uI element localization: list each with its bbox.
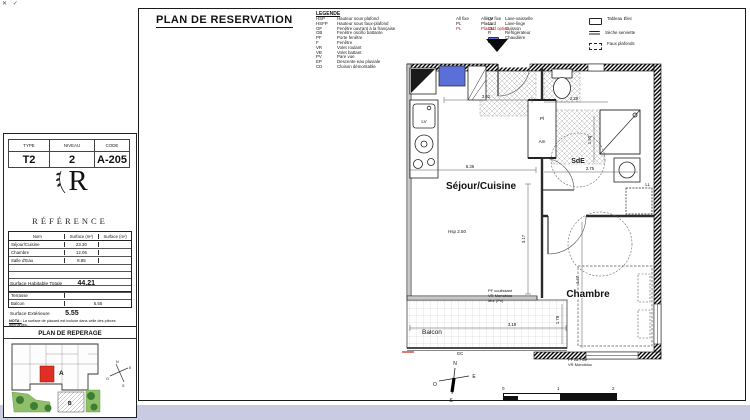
svg-text:VR Monobloc: VR Monobloc (568, 362, 592, 367)
brand-name: RÉFÉRENCE (4, 216, 136, 226)
chaudiere (439, 66, 465, 86)
balcony (402, 300, 567, 352)
surface-row-empty (9, 265, 131, 272)
svg-text:3.19: 3.19 (508, 322, 517, 327)
svg-text:S: S (122, 384, 125, 388)
chambre-label: Chambre (566, 289, 610, 300)
total-value: 44.21 (78, 280, 96, 287)
reperage-heading: PLAN DE REPERAGE (4, 327, 136, 339)
legend-col4: Tableau Élec Sèche serviette Faux plafon… (589, 17, 659, 56)
niveau-header: NIVEAU (50, 140, 95, 152)
brand-logo: R (4, 166, 136, 196)
code-header: CODE (95, 140, 130, 152)
site-plan: A B N E S O (6, 340, 134, 414)
hsp-label: Hsp 2.50 (448, 229, 467, 234)
am-label: Am (539, 139, 546, 144)
scale-bar: 0 1 2 (495, 386, 625, 403)
svg-text:2.75: 2.75 (586, 166, 595, 171)
svg-text:N: N (453, 361, 457, 367)
svg-text:5.36: 5.36 (466, 164, 475, 169)
svg-text:Mur (Pv): Mur (Pv) (488, 298, 504, 303)
surface-row: Chambre12.06 (9, 249, 131, 257)
sejour-label: Séjour/Cuisine (446, 181, 516, 192)
lv-label: LV (421, 119, 426, 124)
compass-rose-icon: N E S O (430, 356, 486, 404)
highlighted-unit (40, 366, 54, 382)
plan-reservation-page: ✕ ✓ PLAN DE RESERVATION LEGENDE HSPHaute… (0, 0, 750, 420)
svg-text:O: O (106, 377, 109, 381)
sde-label: SdE (571, 158, 585, 165)
total-label: Surface Habitable Totale (10, 282, 62, 287)
floor-plan: 3.62 5.36 3.17 2.29 1.90 2.75 4.47 3.19 … (402, 56, 672, 368)
page-title: PLAN DE RESERVATION (156, 14, 293, 28)
svg-text:E: E (472, 374, 476, 380)
col-surface1: Surface (m²) (65, 234, 100, 239)
building-a-label: A (59, 370, 64, 377)
exterior-label: Surface Extérieure (10, 312, 50, 317)
cursor-triangle-icon (486, 39, 508, 52)
type-header: TYPE (9, 140, 50, 152)
surface-table: Nom Surface (m²) Surface (m²) Séjour/Cui… (8, 231, 132, 300)
exterior-value: 5.55 (65, 310, 79, 317)
seche-serviette-icon (589, 31, 600, 36)
closet-pl (528, 100, 556, 158)
svg-text:S: S (449, 398, 453, 404)
corner-marks: ✕ ✓ (2, 0, 20, 7)
pl-label: Pl (540, 116, 544, 122)
exterior-line: Surface Extérieure 5.55 (10, 310, 132, 317)
exterior-table: Terrasse Balcon5.55 (8, 291, 132, 308)
faux-plafonds-icon (589, 43, 602, 50)
svg-text:2.29: 2.29 (570, 96, 579, 101)
balcon-label: Balcon (422, 329, 442, 336)
faux-plafond-area (552, 110, 604, 164)
svg-text:1.90: 1.90 (587, 135, 592, 144)
building-b-label: B (68, 401, 72, 407)
total-line: Surface Habitable Totale 44.21 (10, 280, 132, 287)
surface-row-empty (9, 272, 131, 279)
svg-text:E: E (129, 366, 132, 370)
ll-label: LL (645, 182, 650, 187)
brand-initial: R (68, 165, 87, 197)
balcon-row: Balcon5.55 (9, 300, 131, 307)
surface-row: Salle d'Eau8.85 (9, 257, 131, 265)
col-surface2: Surface (m²) (99, 234, 131, 239)
svg-text:N: N (116, 360, 119, 364)
svg-text:3.17: 3.17 (521, 234, 526, 243)
info-panel: TYPE NIVEAU CODE T2 2 A-205 R RÉFÉRENCE … (3, 133, 137, 328)
col-nom: Nom (9, 234, 65, 239)
laurel-icon (52, 169, 68, 195)
type-table: TYPE NIVEAU CODE T2 2 A-205 (8, 139, 130, 168)
svg-text:O: O (433, 382, 437, 388)
tableau-elec-icon (589, 18, 602, 25)
svg-text:1.78: 1.78 (555, 315, 560, 324)
reperage-box: PLAN DE REPERAGE A B N E S O (3, 326, 137, 418)
mini-compass-icon: N E S O (106, 360, 132, 388)
svg-text:3.62: 3.62 (482, 94, 491, 99)
surface-row: Séjour/Cuisine23.30 (9, 241, 131, 249)
terrasse-row: Terrasse (9, 292, 131, 300)
svg-text:4.47: 4.47 (575, 275, 580, 284)
interior-walls (542, 68, 654, 298)
